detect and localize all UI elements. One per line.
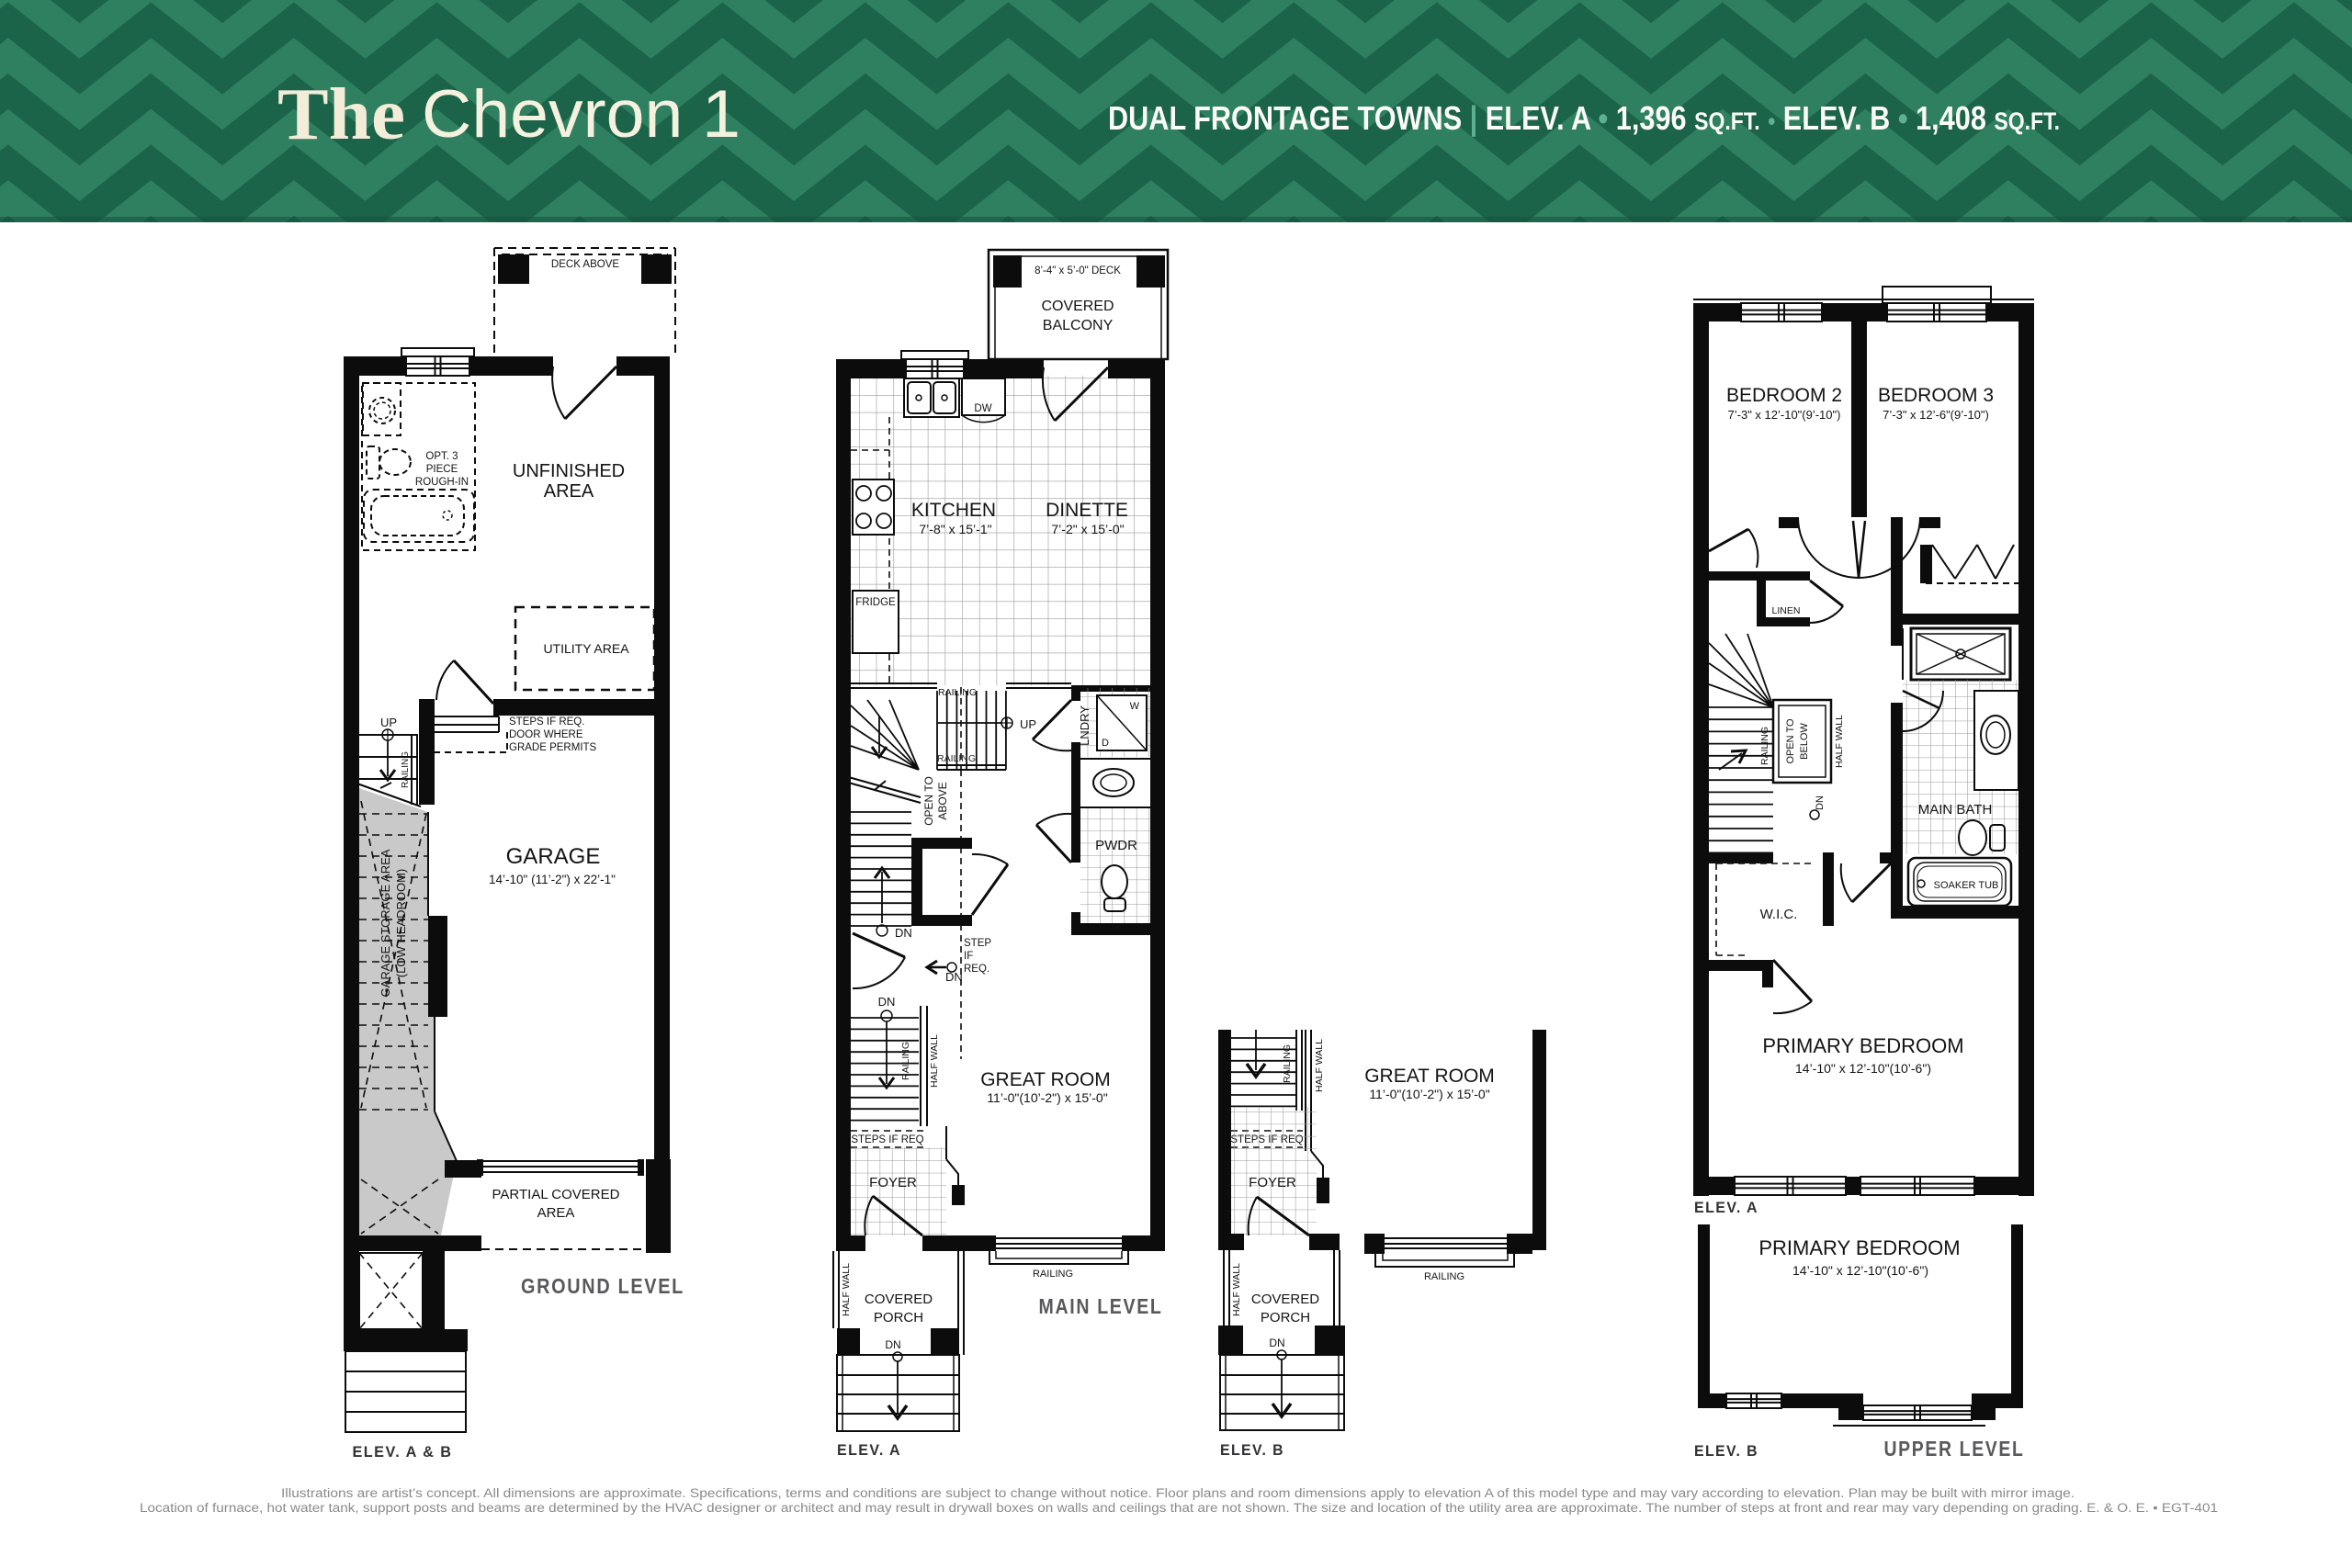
svg-text:7’-2" x 15’-0": 7’-2" x 15’-0": [1051, 522, 1124, 536]
svg-text:D: D: [1102, 738, 1109, 749]
svg-text:UTILITY AREA: UTILITY AREA: [543, 641, 629, 656]
svg-text:BELOW: BELOW: [1799, 723, 1810, 760]
svg-text:ROUGH-IN: ROUGH-IN: [415, 477, 469, 488]
svg-text:DOOR WHERE: DOOR WHERE: [509, 729, 583, 740]
svg-text:MAIN BATH: MAIN BATH: [1918, 802, 1993, 818]
svg-text:UNFINISHED: UNFINISHED: [513, 461, 625, 481]
svg-text:DW: DW: [974, 403, 991, 414]
svg-text:W.I.C.: W.I.C.: [1760, 907, 1798, 922]
svg-text:14’-10" (11’-2") x 22’-1": 14’-10" (11’-2") x 22’-1": [489, 873, 616, 886]
svg-text:UP: UP: [1020, 717, 1036, 731]
svg-text:(LOW HEADROOM): (LOW HEADROOM): [394, 869, 408, 977]
svg-text:BEDROOM 2: BEDROOM 2: [1726, 385, 1842, 406]
svg-text:ELEV. A & B: ELEV. A & B: [353, 1443, 453, 1461]
svg-text:Illustrations are artist’s con: Illustrations are artist’s concept. All …: [281, 1486, 2075, 1501]
svg-text:FRIDGE: FRIDGE: [855, 597, 896, 608]
svg-text:STEPS IF REQ: STEPS IF REQ: [851, 1134, 923, 1145]
svg-text:HALF WALL: HALF WALL: [1231, 1263, 1242, 1316]
svg-text:DUAL FRONTAGE TOWNS | ELEV. A: DUAL FRONTAGE TOWNS | ELEV. A • 1,396 SQ…: [1108, 99, 2060, 138]
svg-text:BEDROOM 3: BEDROOM 3: [1878, 385, 1994, 406]
svg-text:AREA: AREA: [537, 1205, 575, 1221]
svg-text:7’-3" x 12’-6"(9’-10"): 7’-3" x 12’-6"(9’-10"): [1883, 408, 1989, 422]
svg-text:DINETTE: DINETTE: [1046, 500, 1128, 521]
svg-text:AREA: AREA: [544, 481, 594, 502]
svg-text:IF: IF: [964, 951, 973, 962]
svg-text:OPEN TO: OPEN TO: [922, 776, 935, 826]
svg-text:GROUND LEVEL: GROUND LEVEL: [521, 1274, 684, 1298]
svg-text:PARTIAL COVERED: PARTIAL COVERED: [492, 1187, 620, 1202]
svg-text:FOYER: FOYER: [1249, 1175, 1296, 1190]
svg-text:HALF WALL: HALF WALL: [1314, 1039, 1325, 1092]
svg-text:PRIMARY BEDROOM: PRIMARY BEDROOM: [1758, 1236, 1960, 1259]
svg-text:DN: DN: [1269, 1337, 1284, 1349]
svg-text:ELEV. B: ELEV. B: [1694, 1442, 1758, 1460]
svg-text:HALF WALL: HALF WALL: [1834, 715, 1845, 768]
svg-text:GARAGE: GARAGE: [506, 844, 601, 869]
svg-text:COVERED: COVERED: [1041, 299, 1114, 314]
svg-text:The: The: [277, 74, 405, 155]
svg-text:DN: DN: [895, 926, 912, 940]
svg-text:MAIN LEVEL: MAIN LEVEL: [1039, 1294, 1163, 1318]
svg-text:RAILING: RAILING: [1033, 1269, 1073, 1280]
svg-text:UP: UP: [380, 716, 397, 729]
svg-text:Location of furnace, hot water: Location of furnace, hot water tank, sup…: [140, 1501, 2218, 1516]
svg-text:ELEV. A: ELEV. A: [1694, 1199, 1758, 1216]
svg-text:PRIMARY BEDROOM: PRIMARY BEDROOM: [1762, 1034, 1963, 1057]
svg-text:HALF WALL: HALF WALL: [929, 1034, 940, 1088]
svg-text:ELEV. B: ELEV. B: [1220, 1441, 1284, 1459]
svg-text:DECK ABOVE: DECK ABOVE: [551, 259, 619, 270]
svg-text:FOYER: FOYER: [869, 1175, 917, 1190]
svg-text:W: W: [1130, 701, 1140, 712]
svg-text:GRADE PERMITS: GRADE PERMITS: [509, 742, 597, 753]
svg-text:HALF WALL: HALF WALL: [841, 1263, 852, 1316]
svg-text:PIECE: PIECE: [426, 464, 458, 475]
svg-text:14’-10" x 12’-10"(10’-6"): 14’-10" x 12’-10"(10’-6"): [1795, 1061, 1931, 1076]
svg-text:SOAKER TUB: SOAKER TUB: [1934, 880, 1999, 891]
svg-text:PWDR: PWDR: [1095, 838, 1137, 853]
svg-text:DN: DN: [878, 995, 896, 1009]
svg-text:7’-8" x 15’-1": 7’-8" x 15’-1": [919, 522, 991, 536]
svg-text:11’-0"(10’-2") x 15’-0": 11’-0"(10’-2") x 15’-0": [1369, 1087, 1489, 1101]
svg-text:ELEV. A: ELEV. A: [837, 1441, 901, 1459]
svg-text:PORCH: PORCH: [1261, 1310, 1310, 1325]
svg-text:8’-4" x 5’-0" DECK: 8’-4" x 5’-0" DECK: [1035, 265, 1121, 276]
svg-text:OPEN TO: OPEN TO: [1785, 718, 1796, 764]
svg-text:GREAT ROOM: GREAT ROOM: [980, 1069, 1111, 1090]
svg-text:Chevron 1: Chevron 1: [422, 77, 741, 152]
svg-text:7’-3" x 12’-10"(9’-10"): 7’-3" x 12’-10"(9’-10"): [1728, 408, 1841, 422]
svg-text:DN: DN: [885, 1338, 900, 1351]
svg-text:OPT. 3: OPT. 3: [425, 451, 458, 462]
svg-text:STEPS IF REQ.: STEPS IF REQ.: [509, 716, 584, 728]
svg-text:GREAT ROOM: GREAT ROOM: [1364, 1066, 1495, 1087]
svg-text:RAILING: RAILING: [1282, 1044, 1293, 1083]
svg-text:RAILING: RAILING: [900, 1042, 911, 1080]
svg-text:11’-0"(10’-2") x 15’-0": 11’-0"(10’-2") x 15’-0": [987, 1090, 1107, 1105]
svg-text:GARAGE STORAGE AREA: GARAGE STORAGE AREA: [379, 849, 392, 997]
svg-text:14’-10" x 12’-10"(10’-6"): 14’-10" x 12’-10"(10’-6"): [1792, 1263, 1928, 1278]
svg-text:COVERED: COVERED: [865, 1292, 933, 1307]
svg-text:BALCONY: BALCONY: [1043, 318, 1114, 333]
svg-text:STEP: STEP: [964, 938, 991, 949]
svg-text:DN: DN: [1815, 795, 1826, 810]
svg-text:UPPER LEVEL: UPPER LEVEL: [1884, 1437, 2025, 1461]
svg-text:REQ.: REQ.: [964, 964, 989, 975]
svg-text:KITCHEN: KITCHEN: [911, 500, 996, 521]
svg-text:COVERED: COVERED: [1251, 1292, 1319, 1307]
svg-text:RAILING: RAILING: [1424, 1271, 1464, 1282]
svg-text:DN: DN: [945, 970, 963, 984]
svg-text:RAILING: RAILING: [401, 751, 411, 788]
svg-text:LNDRY: LNDRY: [1078, 705, 1091, 746]
svg-text:PORCH: PORCH: [874, 1310, 923, 1325]
svg-text:RAILING: RAILING: [1759, 727, 1770, 765]
svg-text:LINEN: LINEN: [1772, 605, 1801, 616]
svg-text:RAILING: RAILING: [937, 753, 976, 764]
svg-text:ABOVE: ABOVE: [936, 782, 949, 819]
